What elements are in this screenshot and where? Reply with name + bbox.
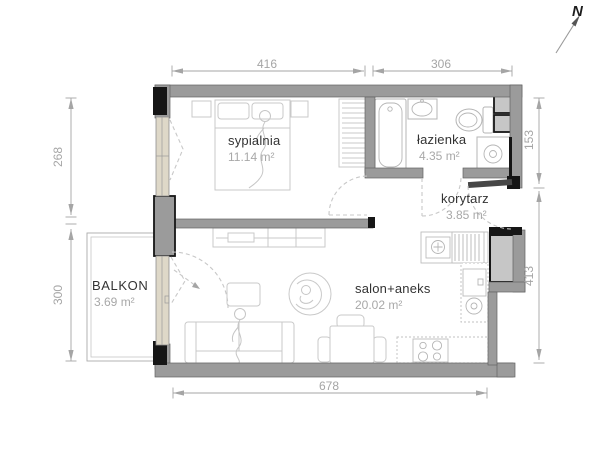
window-tilt-lines [170, 120, 183, 180]
floor-plan: sypialnia 11.14 m² łazienka 4.35 m² kory… [0, 0, 600, 457]
dim-right-153: 153 [523, 130, 535, 150]
room-label-balkon: BALKON [92, 279, 148, 292]
dim-left-300: 300 [52, 285, 64, 305]
wardrobe-symbol [339, 99, 369, 167]
floor-plan-drawing [0, 0, 600, 457]
bedroom-window [156, 117, 169, 196]
washing-machine-symbol [477, 137, 510, 171]
balcony-door-window [156, 256, 169, 345]
room-area-korytarz: 3.85 m² [446, 209, 487, 221]
room-area-lazienka: 4.35 m² [419, 150, 460, 162]
room-label-sypialnia: sypialnia [228, 134, 280, 147]
room-area-sypialnia: 11.14 m² [228, 151, 274, 163]
shaft-icon [494, 96, 512, 132]
hanging-chair-symbol [289, 273, 331, 315]
room-label-salon-aneks: salon+aneks [355, 282, 431, 295]
door-arc-balcony [171, 252, 228, 308]
room-label-lazienka: łazienka [417, 133, 466, 146]
bathtub-symbol [375, 99, 406, 172]
bathroom-sink-symbol [408, 99, 437, 119]
tv-cabinet-symbol [213, 228, 325, 247]
coffee-table-symbol [227, 283, 260, 306]
north-arrow-icon [556, 15, 580, 53]
stove-symbol [413, 339, 448, 362]
dim-left-268: 268 [52, 147, 64, 167]
room-label-korytarz: korytarz [441, 192, 489, 205]
dim-bottom-678: 678 [319, 380, 339, 392]
dim-top-306: 306 [431, 58, 451, 70]
room-area-salon-aneks: 20.02 m² [355, 299, 402, 311]
dim-top-416: 416 [257, 58, 277, 70]
door-arc-bedroom [329, 176, 368, 215]
dim-right-413: 413 [523, 266, 535, 286]
sofa-symbol [185, 309, 294, 365]
room-area-balkon: 3.69 m² [94, 296, 135, 308]
fridge-symbol [490, 235, 514, 282]
north-label: N [572, 4, 583, 19]
toilet-symbol [456, 107, 493, 133]
dining-table-symbol [318, 315, 386, 363]
